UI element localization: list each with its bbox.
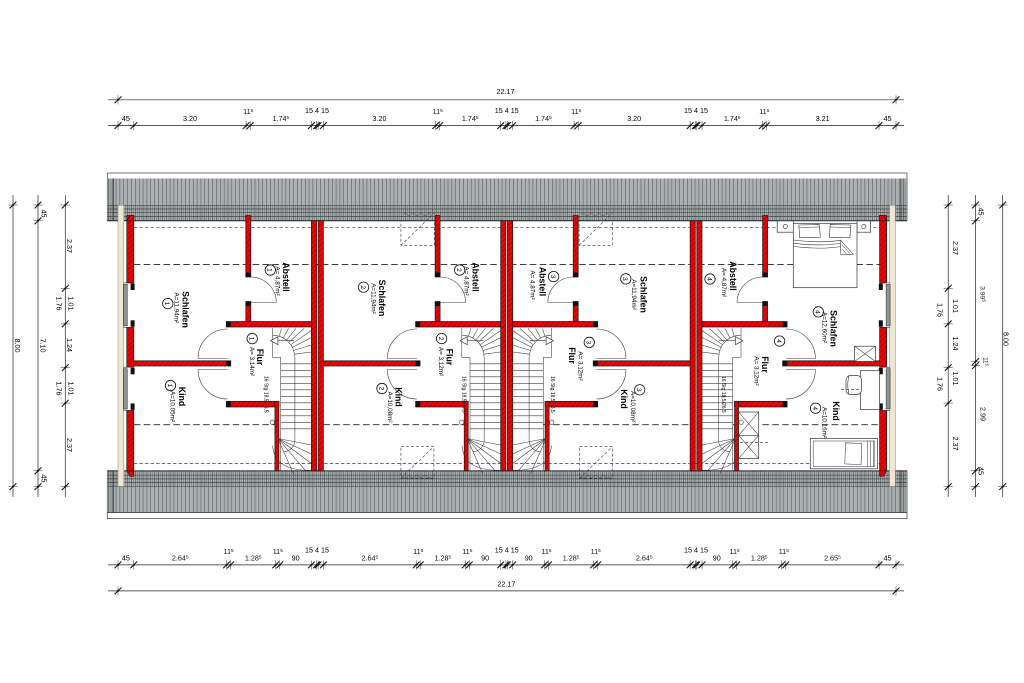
svg-text:1.76: 1.76 bbox=[936, 377, 945, 391]
svg-text:A=11,94m²: A=11,94m² bbox=[630, 279, 637, 310]
svg-text:A= 3,12m²: A= 3,12m² bbox=[437, 347, 444, 376]
svg-text:Kind: Kind bbox=[177, 387, 187, 407]
svg-text:45: 45 bbox=[977, 467, 986, 475]
svg-text:90: 90 bbox=[292, 554, 300, 563]
svg-text:A=10,05m²: A=10,05m² bbox=[168, 391, 175, 422]
svg-text:2: 2 bbox=[377, 387, 384, 391]
svg-text:7.10: 7.10 bbox=[39, 339, 48, 353]
svg-text:16 Stg 18,5/26,5: 16 Stg 18,5/26,5 bbox=[549, 376, 555, 413]
svg-text:Flur: Flur bbox=[255, 349, 265, 366]
svg-text:A= 3,14m²: A= 3,14m² bbox=[248, 347, 255, 376]
svg-text:16 Stg 18,5/26,5: 16 Stg 18,5/26,5 bbox=[720, 376, 726, 413]
svg-text:A=10,16m²: A=10,16m² bbox=[821, 407, 828, 438]
svg-text:A= 4,87m²: A= 4,87m² bbox=[528, 270, 535, 299]
svg-text:2.37: 2.37 bbox=[951, 241, 960, 255]
svg-text:4: 4 bbox=[814, 310, 821, 314]
svg-text:22.17: 22.17 bbox=[497, 580, 515, 589]
svg-text:16 Stg 18,5/26,5: 16 Stg 18,5/26,5 bbox=[263, 376, 269, 413]
svg-text:2.37: 2.37 bbox=[65, 438, 74, 452]
svg-text:1.01: 1.01 bbox=[66, 382, 75, 396]
svg-text:2: 2 bbox=[437, 337, 444, 341]
svg-text:15 4 15: 15 4 15 bbox=[305, 546, 329, 555]
svg-text:45: 45 bbox=[884, 554, 892, 563]
svg-text:Schlafen: Schlafen bbox=[829, 310, 839, 347]
svg-text:15 4 15: 15 4 15 bbox=[684, 546, 708, 555]
svg-text:1.01: 1.01 bbox=[66, 297, 75, 311]
svg-text:Kind: Kind bbox=[394, 387, 404, 407]
svg-text:1: 1 bbox=[166, 384, 173, 388]
svg-text:45: 45 bbox=[977, 208, 986, 216]
svg-text:4: 4 bbox=[775, 339, 782, 343]
svg-text:A= 4,87m²: A= 4,87m² bbox=[463, 266, 470, 295]
svg-text:3.20: 3.20 bbox=[373, 114, 387, 123]
svg-text:15 4 15: 15 4 15 bbox=[495, 546, 519, 555]
svg-text:A=10,08m²: A=10,08m² bbox=[629, 391, 636, 422]
svg-text:3.20: 3.20 bbox=[627, 114, 641, 123]
svg-text:Flur: Flur bbox=[760, 356, 770, 373]
svg-text:3: 3 bbox=[621, 277, 628, 281]
svg-text:45: 45 bbox=[884, 114, 892, 123]
svg-text:Kind: Kind bbox=[619, 389, 629, 409]
svg-text:90: 90 bbox=[481, 554, 489, 563]
svg-text:1: 1 bbox=[163, 302, 170, 306]
svg-text:3.21: 3.21 bbox=[816, 114, 830, 123]
svg-text:2.37: 2.37 bbox=[65, 239, 74, 253]
svg-text:A=12,60m²: A=12,60m² bbox=[821, 312, 828, 343]
svg-text:Schlafen: Schlafen bbox=[639, 276, 649, 313]
svg-text:4: 4 bbox=[811, 406, 818, 410]
svg-text:3: 3 bbox=[585, 341, 592, 345]
svg-text:15 4 15: 15 4 15 bbox=[305, 106, 329, 115]
svg-text:Kind: Kind bbox=[831, 401, 841, 421]
svg-text:Schlafen: Schlafen bbox=[181, 291, 191, 328]
svg-text:4: 4 bbox=[705, 277, 712, 281]
svg-text:Abstell: Abstell bbox=[728, 261, 738, 290]
svg-text:1: 1 bbox=[266, 268, 273, 272]
svg-text:Abstell: Abstell bbox=[281, 262, 291, 291]
svg-text:3: 3 bbox=[549, 275, 556, 279]
svg-text:1.76: 1.76 bbox=[55, 297, 64, 311]
svg-text:8.00: 8.00 bbox=[13, 339, 22, 353]
svg-text:45: 45 bbox=[122, 554, 130, 563]
svg-text:A= 4,87m²: A= 4,87m² bbox=[273, 266, 280, 295]
svg-text:3.20: 3.20 bbox=[183, 114, 197, 123]
svg-text:22.17: 22.17 bbox=[497, 87, 515, 96]
svg-text:1.76: 1.76 bbox=[55, 382, 64, 396]
svg-text:1.24: 1.24 bbox=[65, 338, 74, 352]
svg-text:2: 2 bbox=[359, 285, 366, 289]
svg-text:A=11,94m²: A=11,94m² bbox=[369, 283, 376, 314]
svg-text:45: 45 bbox=[122, 114, 130, 123]
svg-text:2.99: 2.99 bbox=[979, 407, 988, 421]
svg-text:45: 45 bbox=[40, 210, 49, 218]
svg-text:1.01: 1.01 bbox=[951, 299, 960, 313]
svg-text:Flur: Flur bbox=[567, 347, 577, 364]
svg-text:2: 2 bbox=[455, 268, 462, 272]
svg-text:A= 4,87m²: A= 4,87m² bbox=[720, 268, 727, 297]
svg-text:15 4 15: 15 4 15 bbox=[684, 106, 708, 115]
svg-text:A=11,94m²: A=11,94m² bbox=[173, 293, 180, 324]
svg-text:Flur: Flur bbox=[444, 349, 454, 366]
svg-text:2.37: 2.37 bbox=[951, 437, 960, 451]
svg-text:15 4 15: 15 4 15 bbox=[495, 106, 519, 115]
svg-text:1: 1 bbox=[248, 337, 255, 341]
svg-text:1.76: 1.76 bbox=[936, 303, 945, 317]
svg-text:1.24: 1.24 bbox=[951, 337, 960, 351]
svg-text:45: 45 bbox=[40, 475, 49, 483]
svg-text:A= 3,12m²: A= 3,12m² bbox=[752, 356, 759, 385]
svg-text:Abstell: Abstell bbox=[538, 267, 548, 296]
svg-text:8.00: 8.00 bbox=[1002, 332, 1011, 346]
svg-text:90: 90 bbox=[713, 554, 721, 563]
svg-text:90: 90 bbox=[525, 554, 533, 563]
svg-text:Abstell: Abstell bbox=[470, 262, 480, 291]
svg-text:1.01: 1.01 bbox=[951, 372, 960, 386]
svg-text:Schlafen: Schlafen bbox=[377, 280, 387, 317]
svg-text:A=10,08m²: A=10,08m² bbox=[386, 392, 393, 423]
